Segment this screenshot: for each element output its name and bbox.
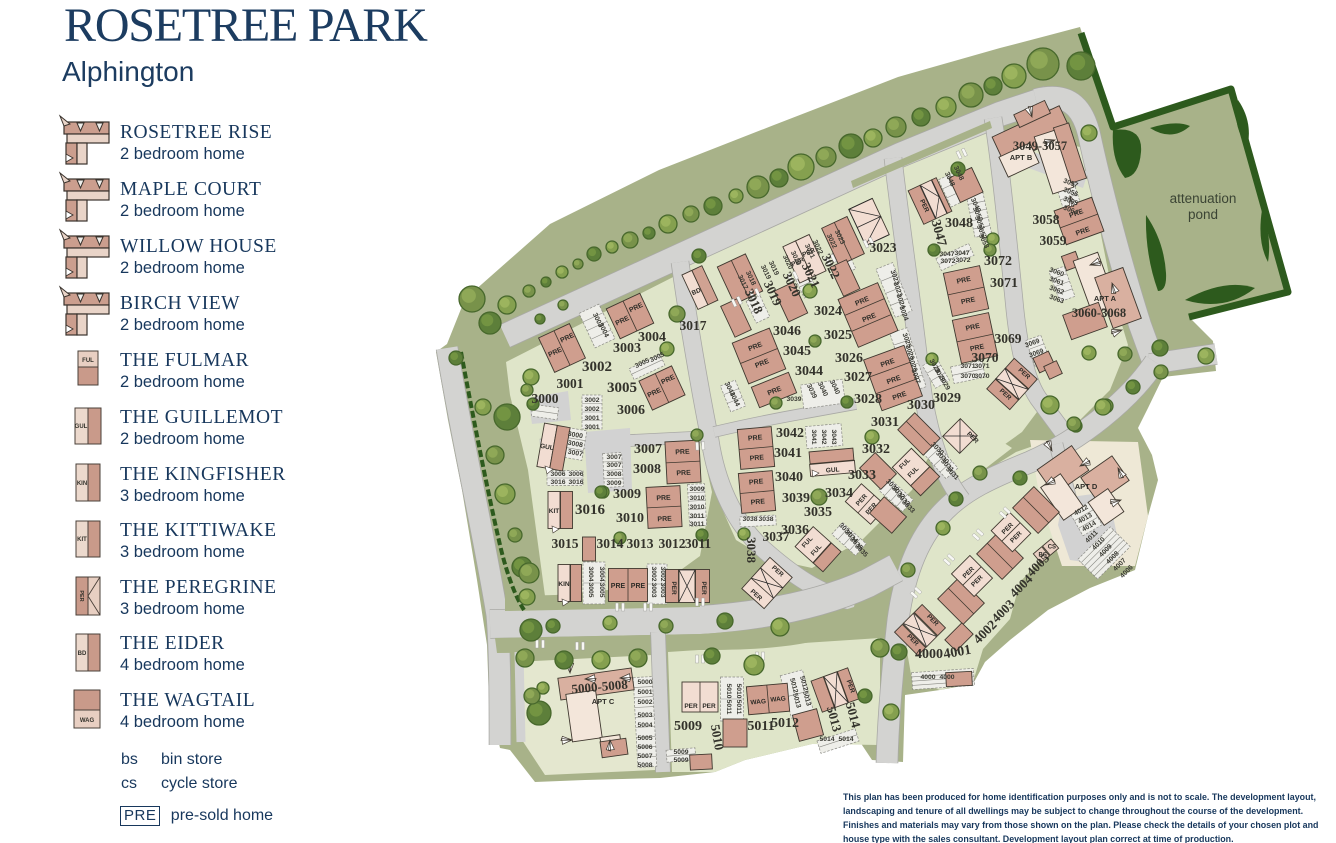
svg-text:PRE: PRE <box>748 434 763 442</box>
svg-text:3011: 3011 <box>690 521 705 528</box>
svg-text:3004: 3004 <box>638 330 666 345</box>
svg-text:5008: 5008 <box>637 762 652 769</box>
svg-text:3003: 3003 <box>613 341 641 356</box>
svg-text:attenuation: attenuation <box>1170 191 1237 206</box>
svg-text:3008: 3008 <box>606 471 621 478</box>
svg-text:5007: 5007 <box>637 753 652 760</box>
svg-text:PER: PER <box>78 590 84 601</box>
svg-text:PRE: PRE <box>676 470 691 478</box>
svg-text:3011: 3011 <box>685 536 712 551</box>
svg-text:5003: 5003 <box>637 712 652 719</box>
svg-text:KIT: KIT <box>77 537 87 543</box>
svg-text:APT A: APT A <box>1094 294 1117 303</box>
svg-text:3041: 3041 <box>774 446 802 461</box>
svg-text:3012: 3012 <box>659 536 686 551</box>
svg-text:5012: 5012 <box>771 716 799 731</box>
svg-text:3001: 3001 <box>557 376 584 391</box>
svg-text:3007: 3007 <box>606 454 621 461</box>
svg-text:5005: 5005 <box>637 735 652 742</box>
svg-text:3038: 3038 <box>742 516 757 523</box>
svg-text:3016: 3016 <box>568 479 583 486</box>
svg-text:3030: 3030 <box>907 398 935 413</box>
svg-text:3007: 3007 <box>606 462 621 469</box>
svg-text:5006: 5006 <box>637 744 652 751</box>
svg-text:4000: 4000 <box>939 674 954 681</box>
svg-text:5000: 5000 <box>637 679 652 686</box>
svg-text:5009: 5009 <box>673 749 688 756</box>
svg-text:3016: 3016 <box>550 479 565 486</box>
svg-text:KIN: KIN <box>77 481 87 487</box>
svg-text:3002: 3002 <box>659 566 666 581</box>
svg-text:PRE: PRE <box>656 495 671 503</box>
svg-text:PRE: PRE <box>631 583 646 590</box>
svg-text:pond: pond <box>1188 207 1218 222</box>
svg-text:3049-3057: 3049-3057 <box>1013 139 1067 153</box>
svg-text:3071: 3071 <box>974 363 989 370</box>
svg-text:APT C: APT C <box>592 697 615 706</box>
svg-text:3004: 3004 <box>587 566 594 581</box>
svg-text:3002: 3002 <box>584 397 599 404</box>
svg-text:3039: 3039 <box>782 491 810 506</box>
svg-text:3043: 3043 <box>830 429 837 444</box>
svg-text:3046: 3046 <box>773 324 801 339</box>
svg-text:3001: 3001 <box>584 424 599 431</box>
svg-text:3003: 3003 <box>650 582 657 597</box>
svg-text:PRE: PRE <box>657 516 672 524</box>
svg-text:3005: 3005 <box>598 582 605 597</box>
svg-text:3017: 3017 <box>680 318 707 333</box>
svg-text:3010: 3010 <box>616 511 644 526</box>
svg-text:5009: 5009 <box>673 757 688 764</box>
svg-text:3047: 3047 <box>954 250 969 257</box>
svg-text:3060-3068: 3060-3068 <box>1072 306 1126 320</box>
svg-text:3048: 3048 <box>945 216 973 231</box>
svg-text:3009: 3009 <box>606 480 621 487</box>
svg-text:APT B: APT B <box>1010 153 1033 162</box>
svg-text:3000: 3000 <box>532 391 559 406</box>
svg-text:3070: 3070 <box>974 373 989 380</box>
svg-text:5014: 5014 <box>819 736 834 743</box>
svg-text:5004: 5004 <box>637 722 652 729</box>
svg-text:3009: 3009 <box>689 486 704 493</box>
svg-text:3071: 3071 <box>990 276 1018 291</box>
svg-text:3008: 3008 <box>633 462 661 477</box>
svg-text:3047: 3047 <box>939 251 954 258</box>
svg-text:3044: 3044 <box>795 364 823 379</box>
svg-text:3007: 3007 <box>634 442 662 457</box>
svg-text:3002: 3002 <box>650 566 657 581</box>
svg-text:3024: 3024 <box>814 304 842 319</box>
svg-text:PRE: PRE <box>675 449 690 457</box>
svg-text:BD: BD <box>78 651 87 657</box>
svg-text:3023: 3023 <box>870 240 897 255</box>
svg-text:5014: 5014 <box>838 736 853 743</box>
svg-text:FUL: FUL <box>82 358 94 364</box>
svg-text:PER: PER <box>670 581 677 595</box>
svg-text:3045: 3045 <box>783 344 811 359</box>
svg-text:3025: 3025 <box>824 328 852 343</box>
svg-text:3038: 3038 <box>758 516 773 523</box>
svg-text:5011: 5011 <box>735 700 742 715</box>
svg-text:3059: 3059 <box>1040 233 1067 248</box>
svg-text:3010: 3010 <box>689 504 704 511</box>
svg-text:5002: 5002 <box>637 699 652 706</box>
svg-text:3027: 3027 <box>844 370 872 385</box>
svg-text:GUL: GUL <box>75 424 88 430</box>
svg-text:WAG: WAG <box>80 718 95 724</box>
svg-text:3038: 3038 <box>744 537 759 564</box>
svg-text:3004: 3004 <box>598 566 605 581</box>
svg-text:4000: 4000 <box>915 647 943 662</box>
svg-text:3029: 3029 <box>933 391 961 406</box>
svg-text:3040: 3040 <box>775 470 803 485</box>
svg-text:CS: CS <box>1048 545 1056 551</box>
svg-text:3072: 3072 <box>955 257 970 264</box>
svg-text:3002: 3002 <box>584 406 599 413</box>
svg-text:3003: 3003 <box>659 582 666 597</box>
svg-text:3015: 3015 <box>552 536 579 551</box>
svg-text:3006: 3006 <box>617 403 645 418</box>
svg-text:3005: 3005 <box>607 380 637 396</box>
svg-text:3032: 3032 <box>862 442 890 457</box>
svg-text:3041: 3041 <box>810 429 817 444</box>
svg-text:3042: 3042 <box>820 429 827 444</box>
svg-text:WAG: WAG <box>770 695 786 703</box>
svg-text:PER: PER <box>700 581 707 595</box>
svg-text:3013: 3013 <box>627 536 654 551</box>
svg-text:3072: 3072 <box>940 258 955 265</box>
svg-text:APT D: APT D <box>1075 482 1098 491</box>
svg-text:3011: 3011 <box>690 513 705 520</box>
svg-text:3009: 3009 <box>613 487 641 502</box>
svg-text:3006: 3006 <box>568 471 583 478</box>
svg-text:3010: 3010 <box>689 495 704 502</box>
svg-text:GUL: GUL <box>826 466 840 474</box>
svg-text:PRE: PRE <box>611 583 626 590</box>
svg-text:3028: 3028 <box>854 392 882 407</box>
svg-text:PRE: PRE <box>750 498 765 506</box>
svg-text:PRE: PRE <box>749 478 764 486</box>
svg-text:3002: 3002 <box>582 359 612 375</box>
svg-text:PRE: PRE <box>749 454 764 462</box>
svg-text:3016: 3016 <box>575 502 606 518</box>
svg-text:3034: 3034 <box>825 486 853 501</box>
svg-text:3026: 3026 <box>835 351 863 366</box>
svg-text:5009: 5009 <box>674 719 702 734</box>
svg-text:3037: 3037 <box>763 529 790 544</box>
svg-text:3001: 3001 <box>584 415 599 422</box>
svg-text:5011: 5011 <box>725 700 732 715</box>
svg-text:4000: 4000 <box>920 674 935 681</box>
svg-text:3014: 3014 <box>597 536 624 551</box>
svg-text:3042: 3042 <box>776 426 804 441</box>
svg-text:WAG: WAG <box>750 698 766 706</box>
svg-text:KIT: KIT <box>549 508 560 515</box>
svg-text:3069: 3069 <box>995 331 1022 346</box>
svg-text:3005: 3005 <box>587 582 594 597</box>
svg-text:3039: 3039 <box>786 396 801 403</box>
svg-text:3033: 3033 <box>848 468 876 483</box>
svg-text:3035: 3035 <box>804 505 832 520</box>
svg-text:3031: 3031 <box>871 415 899 430</box>
svg-text:3058: 3058 <box>1033 212 1060 227</box>
svg-text:PER: PER <box>702 703 716 710</box>
svg-text:3072: 3072 <box>984 254 1012 269</box>
svg-text:KIN: KIN <box>558 581 570 588</box>
svg-text:5010: 5010 <box>725 683 732 698</box>
svg-text:3006: 3006 <box>550 471 565 478</box>
svg-text:5010: 5010 <box>735 683 742 698</box>
svg-text:5001: 5001 <box>637 689 652 696</box>
svg-text:PER: PER <box>684 703 698 710</box>
